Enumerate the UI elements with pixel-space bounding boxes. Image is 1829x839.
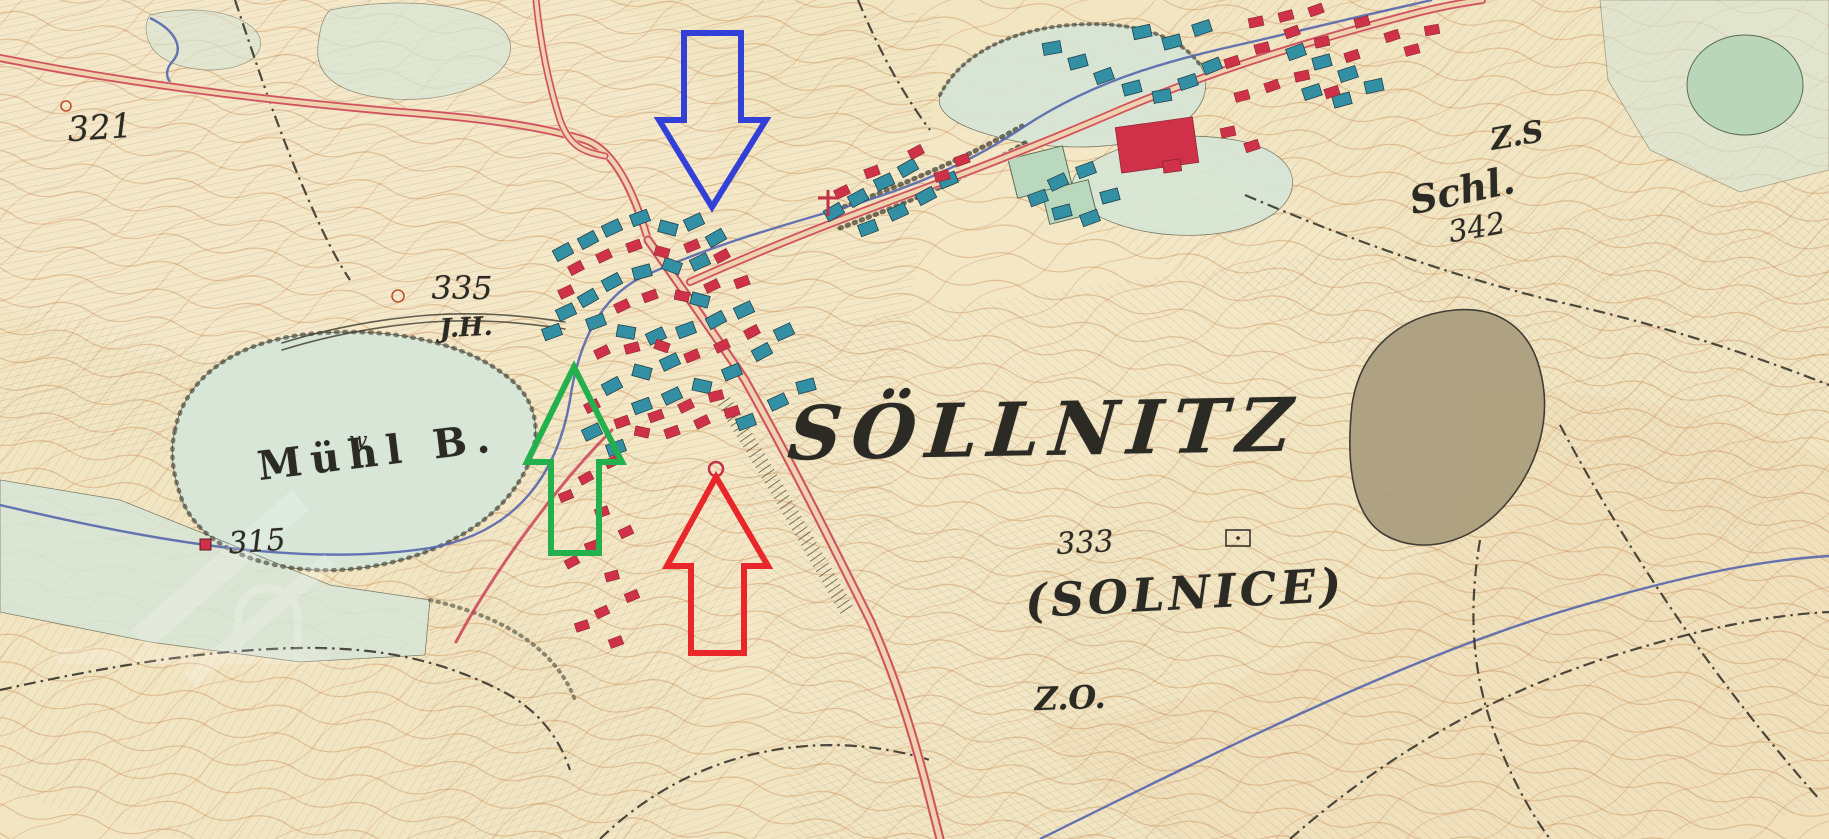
blue-arrow-down: [659, 33, 766, 207]
red-arrow-up: [667, 477, 768, 653]
annotation-arrows: [0, 0, 1829, 839]
green-arrow-up: [527, 367, 622, 553]
historic-map-viewport: 321 335 J.H. Mühl B. w 315 SÖLLNITZ 333 …: [0, 0, 1829, 839]
